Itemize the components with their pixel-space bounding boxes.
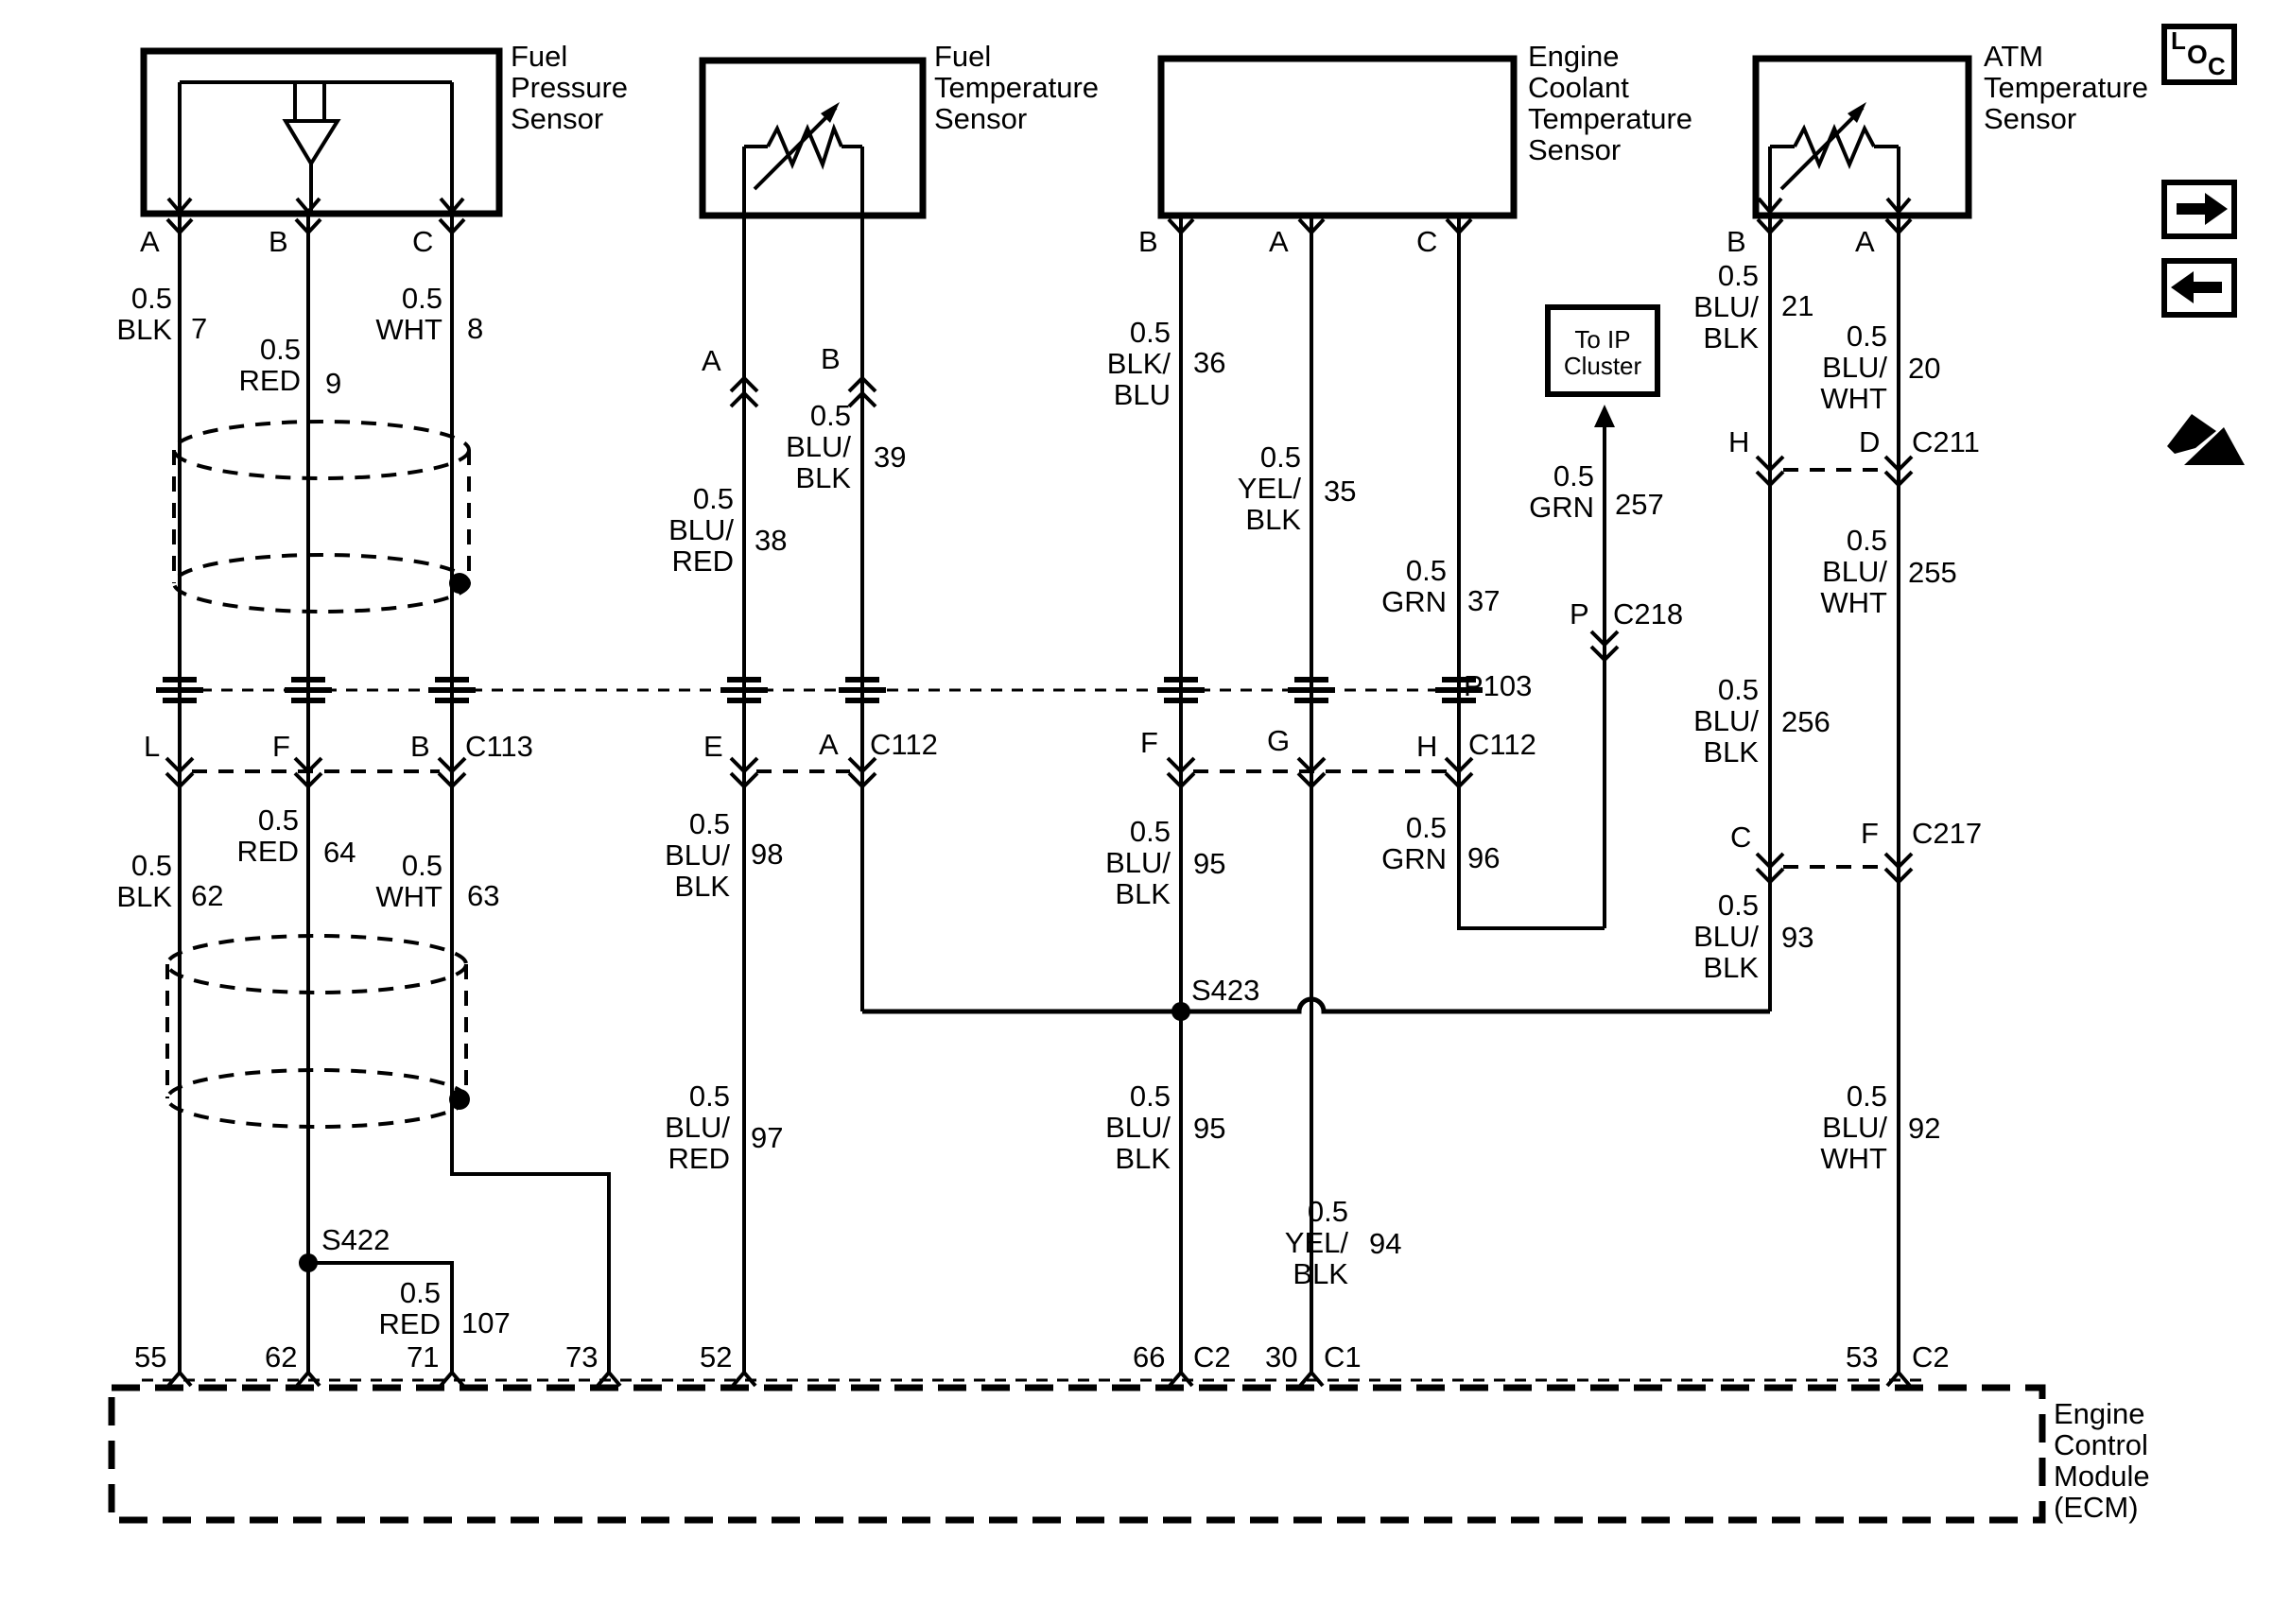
pin-ect-b: B [1138, 227, 1158, 258]
wire-wht-8-63 [452, 214, 609, 1373]
connector-c211: C211 [1912, 427, 1980, 458]
wire-color-wht63: 0.5 WHT [301, 851, 442, 913]
splice-s423-dot [1171, 1002, 1190, 1021]
connector-c112b: C112 [1468, 730, 1536, 761]
pin-fps-c: C [412, 227, 433, 258]
fuel-pressure-sensor-title: Fuel Pressure Sensor [511, 42, 681, 135]
circuit-37: 37 [1467, 586, 1500, 617]
circuit-38: 38 [755, 526, 787, 557]
circuit-63: 63 [467, 881, 499, 912]
loc-icon-letter-o: O [2187, 41, 2208, 69]
wire-color-blk7: 0.5 BLK [30, 284, 172, 346]
ecm-title: Engine Control Module (ECM) [2054, 1399, 2219, 1523]
pin-c217-f: F [1861, 819, 1879, 850]
ecm-conn-c1: C1 [1324, 1342, 1362, 1373]
circuit-97: 97 [751, 1123, 783, 1154]
wire-color-grn257: 0.5 GRN [1452, 461, 1594, 524]
pin-c211-d: D [1859, 427, 1880, 458]
wire-color-blublk95: 0.5 BLU/ BLK [1029, 817, 1171, 910]
wire-color-blublk21: 0.5 BLU/ BLK [1617, 261, 1759, 354]
cable-shield-upper [174, 422, 469, 612]
circuit-95b: 95 [1193, 1114, 1225, 1145]
wire-color-blk62: 0.5 BLK [30, 851, 172, 913]
wire-color-blublk95b: 0.5 BLU/ BLK [1029, 1081, 1171, 1175]
forward-arrow-icon[interactable] [2164, 182, 2234, 236]
wire-color-bluwht255: 0.5 BLU/ WHT [1745, 526, 1887, 619]
connector-c113: C113 [465, 732, 533, 763]
back-arrow-icon[interactable] [2164, 261, 2234, 315]
circuit-96: 96 [1467, 843, 1500, 874]
fuel-temperature-sensor-title: Fuel Temperature Sensor [934, 42, 1123, 135]
circuit-94: 94 [1369, 1229, 1401, 1260]
wiring-diagram-page: Fuel Pressure SensorFuel Temperature Sen… [0, 0, 2273, 1624]
wire-color-wht8: 0.5 WHT [301, 284, 442, 346]
esd-warning-icon [2167, 414, 2245, 465]
circuit-93: 93 [1781, 923, 1813, 954]
loc-icon-letter-c: C [2208, 54, 2226, 80]
pin-fps-b: B [269, 227, 288, 258]
to-ip-cluster-arrowhead [1594, 405, 1615, 427]
wire-color-red107: 0.5 RED [299, 1278, 441, 1340]
pin-fts-b: B [821, 344, 841, 375]
circuit-95: 95 [1193, 849, 1225, 880]
circuit-257: 257 [1615, 490, 1664, 521]
pin-c112-e: E [703, 732, 723, 763]
circuit-256: 256 [1781, 707, 1831, 738]
wire-color-red9: 0.5 RED [159, 335, 301, 397]
circuit-39: 39 [874, 442, 906, 474]
wire-color-yelblk94: 0.5 YEL/ BLK [1206, 1197, 1348, 1290]
pin-c112-a: A [819, 730, 839, 761]
splice-s422-dot [299, 1253, 318, 1272]
wire-color-blkblu36: 0.5 BLK/ BLU [1029, 318, 1171, 411]
ecm-pin-53: 53 [1846, 1342, 1878, 1373]
pin-atm-a: A [1855, 227, 1875, 258]
pin-c217-c: C [1730, 822, 1751, 854]
pin-c113-l: L [144, 732, 160, 763]
circuit-92: 92 [1908, 1114, 1940, 1145]
splice-s423: S423 [1191, 976, 1259, 1007]
ecm-pin-30: 30 [1265, 1342, 1297, 1373]
fuel-pressure-sensor-internal-symbol [168, 82, 463, 212]
ecm-conn-c2a: C2 [1193, 1342, 1231, 1373]
ecm-pin-71: 71 [407, 1342, 439, 1373]
wire-color-grn37: 0.5 GRN [1305, 556, 1447, 618]
ecm-pin-52: 52 [700, 1342, 732, 1373]
ecm-pin-66: 66 [1133, 1342, 1165, 1373]
pin-ect-c: C [1416, 227, 1437, 258]
wire-color-blured38: 0.5 BLU/ RED [592, 484, 734, 578]
pin-fps-a: A [140, 227, 160, 258]
loc-icon-letter-l: L [2171, 28, 2186, 55]
pin-ect-a: A [1269, 227, 1289, 258]
circuit-255: 255 [1908, 558, 1957, 589]
ecm-conn-c2b: C2 [1912, 1342, 1950, 1373]
engine-coolant-temperature-sensor-title: Engine Coolant Temperature Sensor [1528, 42, 1726, 165]
wire-color-blublk98: 0.5 BLU/ BLK [588, 809, 730, 903]
fuel-pressure-sensor-box [144, 51, 499, 214]
splice-s423-bus [862, 999, 1770, 1011]
fuel-temperature-sensor-resistor [744, 102, 862, 216]
circuit-8: 8 [467, 314, 483, 345]
wire-color-blublk93: 0.5 BLU/ BLK [1617, 890, 1759, 984]
pin-c113-b: B [410, 732, 430, 763]
splice-s422: S422 [321, 1225, 390, 1256]
circuit-98: 98 [751, 839, 783, 871]
wire-color-blublk256: 0.5 BLU/ BLK [1617, 675, 1759, 769]
wire-color-red64: 0.5 RED [157, 805, 299, 868]
connector-c217: C217 [1912, 819, 1982, 850]
wire-color-grn96: 0.5 GRN [1305, 813, 1447, 875]
pin-c112-g: G [1267, 726, 1290, 757]
pin-c112-f: F [1140, 728, 1158, 759]
ecm-pin-55: 55 [134, 1342, 166, 1373]
cable-shield-lower [167, 936, 466, 1127]
pin-c211-h: H [1728, 427, 1749, 458]
connector-c112a: C112 [870, 730, 938, 761]
wire-color-blured97: 0.5 BLU/ RED [588, 1081, 730, 1175]
connector-p103: P103 [1464, 671, 1532, 702]
wire-color-bluwht92: 0.5 BLU/ WHT [1745, 1081, 1887, 1175]
engine-coolant-temperature-sensor-box [1161, 59, 1514, 216]
connector-c218: C218 [1613, 599, 1683, 631]
circuit-9: 9 [325, 369, 341, 400]
pin-c218-p: P [1570, 599, 1589, 631]
circuit-62: 62 [191, 881, 223, 912]
pin-fts-a: A [702, 346, 721, 377]
pin-c113-f: F [272, 732, 290, 763]
wire-grn-37-96-257 [1459, 216, 1605, 928]
pin-c112-h: H [1416, 732, 1437, 763]
connector-c217-symbols [1757, 854, 1912, 882]
wire-color-yelblk35: 0.5 YEL/ BLK [1159, 442, 1301, 536]
wire-color-bluwht20: 0.5 BLU/ WHT [1745, 321, 1887, 415]
connector-c211-symbols [1757, 457, 1912, 485]
wiring-linework [0, 0, 2273, 1624]
atm-temperature-sensor-resistor [1759, 102, 1910, 212]
circuit-107: 107 [461, 1308, 511, 1339]
pin-atm-b: B [1726, 227, 1746, 258]
ecm-pin-62: 62 [265, 1342, 297, 1373]
connector-row-c113-c112 [166, 758, 1472, 786]
wire-color-blublk39: 0.5 BLU/ BLK [709, 401, 851, 494]
circuit-36: 36 [1193, 348, 1225, 379]
circuit-20: 20 [1908, 354, 1940, 385]
atm-temperature-sensor-title: ATM Temperature Sensor [1984, 42, 2192, 135]
ecm-pin-73: 73 [565, 1342, 598, 1373]
circuit-35: 35 [1324, 476, 1356, 508]
circuit-21: 21 [1781, 291, 1813, 322]
grommet-row [156, 680, 1483, 700]
ecm-box [112, 1388, 2042, 1520]
